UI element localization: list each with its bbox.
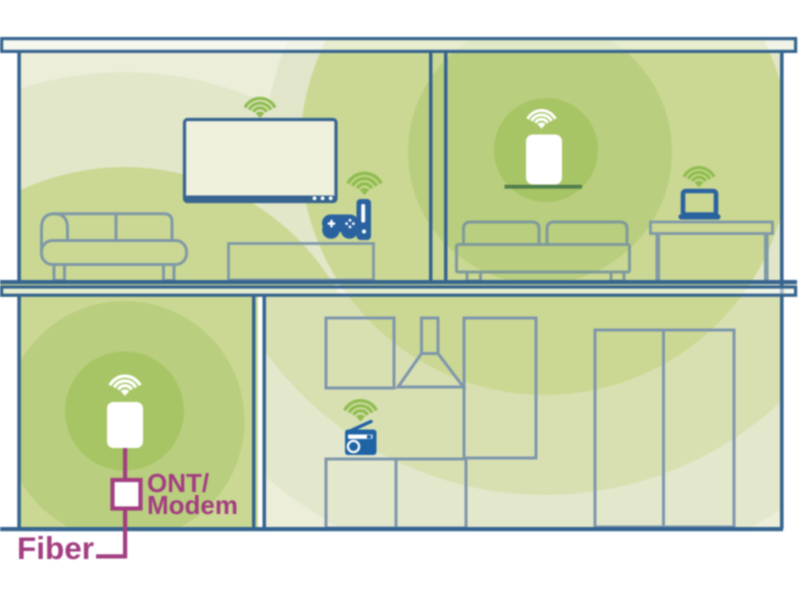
svg-text:Fiber: Fiber	[17, 530, 94, 566]
svg-text:Modem: Modem	[147, 490, 238, 520]
